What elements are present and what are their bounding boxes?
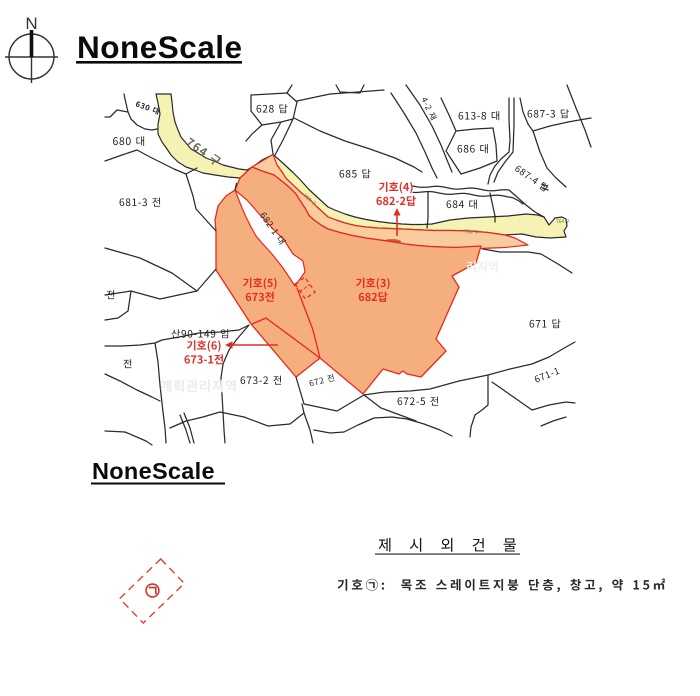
- svg-text:NoneScale: NoneScale: [77, 29, 243, 65]
- svg-text:N: N: [25, 14, 37, 33]
- svg-text:NoneScale: NoneScale: [92, 458, 215, 484]
